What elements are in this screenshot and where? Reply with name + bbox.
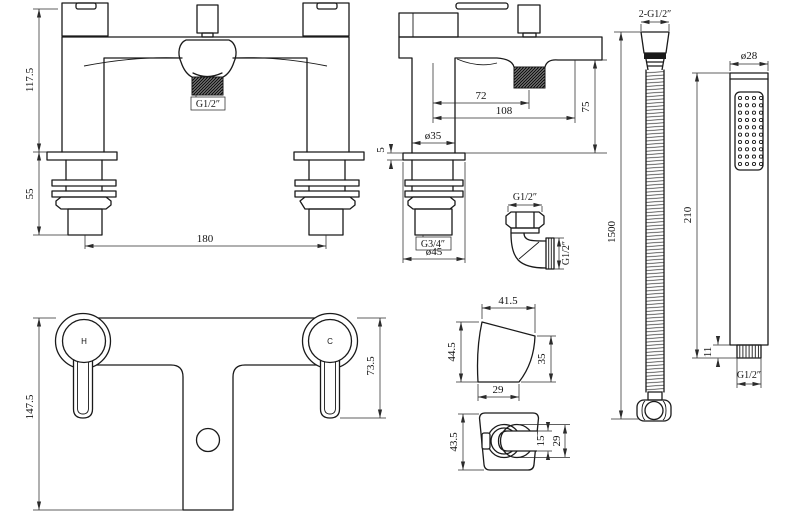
right-washer-1 xyxy=(295,180,359,186)
hot-indicator: H xyxy=(81,337,87,346)
lever-handle-side xyxy=(456,3,508,9)
flange-side xyxy=(403,153,465,160)
technical-drawing-sheet: G1/2″ 117.5 55 180 xyxy=(0,0,800,513)
cold-indicator: C xyxy=(327,337,333,346)
hose-nut-face xyxy=(645,402,663,420)
left-inlet-shank xyxy=(68,209,102,235)
handset-dimensions: ø28 210 11 G1/2″ xyxy=(682,50,768,388)
hose-top-band xyxy=(644,53,666,59)
front-view: G1/2″ 117.5 55 180 xyxy=(24,3,364,249)
backnut-side xyxy=(408,197,455,209)
dim-plan-depth: 147.5 xyxy=(24,394,36,419)
connector-threads xyxy=(740,346,759,358)
right-washer-2 xyxy=(295,191,359,197)
cold-handle xyxy=(303,3,349,36)
right-flange xyxy=(294,152,364,160)
outlet-dome xyxy=(179,40,236,77)
dim-total-height: 117.5 xyxy=(24,67,36,92)
hot-handle xyxy=(62,3,108,36)
diverter-knob-side xyxy=(518,5,540,33)
elbow-hex-nut xyxy=(506,212,544,228)
right-inlet-shank xyxy=(309,209,343,235)
dim-handset-length: 210 xyxy=(682,206,694,223)
left-washer-1 xyxy=(52,180,116,186)
valve-body-side xyxy=(399,13,458,37)
bracket-tab xyxy=(482,433,490,449)
left-washer-2 xyxy=(52,191,116,197)
hot-handle-notch xyxy=(76,3,96,9)
dim-hole-centres: 180 xyxy=(197,233,214,245)
bracket-front-view: 43.5 15 29 xyxy=(448,413,570,470)
dim-connector-thread: G1/2″ xyxy=(737,370,761,381)
dim-deck-height: 75 xyxy=(580,101,592,113)
elbow-collar xyxy=(511,228,539,233)
bracket-side-outline xyxy=(478,322,536,382)
handset: ø28 210 11 G1/2″ xyxy=(682,50,768,388)
elbow-thread-end xyxy=(546,238,554,269)
elbow-thread-lines xyxy=(549,238,552,269)
side-view-dimensions: 72 108 75 ø35 5 ø45 xyxy=(375,60,607,263)
dim-spout-thread: G1/2″ xyxy=(196,99,220,110)
hose-top-cone xyxy=(641,32,669,53)
right-backnut xyxy=(300,197,355,209)
dim-elbow-thread-side: G1/2″ xyxy=(561,241,572,265)
dim-base-dia: ø45 xyxy=(426,246,443,258)
elbow-dimensions: G1/2″ G1/2″ xyxy=(508,192,572,269)
spray-holes xyxy=(738,96,762,165)
dim-clip-bore: 15 xyxy=(535,435,547,447)
dim-bracket-top-width: 41.5 xyxy=(498,295,518,307)
dim-bracket-front-height2: 43.5 xyxy=(448,432,460,452)
spout-thread-hatch xyxy=(192,77,223,95)
hose-neck xyxy=(646,59,664,70)
left-flange xyxy=(47,152,117,160)
bracket-side-dimensions: 41.5 44.5 35 29 xyxy=(446,295,556,401)
dim-connector-height: 11 xyxy=(702,347,714,358)
dim-bracket-base-width: 29 xyxy=(493,384,505,396)
spout-thread-hatch-side xyxy=(514,67,545,88)
diverter-hole-plan xyxy=(197,429,220,452)
dim-body-dia: ø35 xyxy=(425,130,442,142)
front-view-dimensions: 117.5 55 180 xyxy=(24,9,326,249)
plan-view: H C 147.5 73.5 xyxy=(24,314,386,511)
dim-deck-plate: 5 xyxy=(375,147,387,153)
elbow-fitting: G1/2″ G1/2″ xyxy=(506,192,572,269)
deck-underside-curve xyxy=(457,59,497,65)
cold-handle-notch xyxy=(317,3,337,9)
dim-handle-projection: 73.5 xyxy=(365,356,377,376)
dim-head-dia: ø28 xyxy=(741,50,758,62)
shower-hose: 2-G1/2″ 1500 xyxy=(606,9,671,421)
dim-elbow-thread-top: G1/2″ xyxy=(513,192,537,203)
dim-bracket-front-height: 35 xyxy=(536,353,548,365)
washer-2-side xyxy=(405,191,463,197)
diverter-knob xyxy=(197,5,218,33)
clip-bore-fill xyxy=(504,431,537,451)
inlet-shank-side xyxy=(415,209,452,235)
dim-overall-reach: 108 xyxy=(496,105,513,117)
plan-bar-bottom-edge xyxy=(84,365,330,510)
plan-bar-fill xyxy=(83,318,330,365)
spout-underside-curves xyxy=(84,58,327,66)
hose-bottom-collar xyxy=(648,392,662,400)
dim-hose-connections: 2-G1/2″ xyxy=(639,9,672,20)
diverter-stem xyxy=(202,33,213,37)
bath-shower-mixer-drawing: G1/2″ 117.5 55 180 xyxy=(0,0,800,513)
hose-corrugation xyxy=(646,70,664,392)
dim-hose-length: 1500 xyxy=(606,221,618,244)
dim-shank-length: 55 xyxy=(24,188,36,200)
side-view: G3/4″ 72 108 75 ø35 5 ø45 xyxy=(375,3,607,263)
dim-spout-centre: 72 xyxy=(476,90,487,102)
dim-ring-dia: 29 xyxy=(551,435,563,447)
bracket-side-view: 41.5 44.5 35 29 xyxy=(446,295,556,401)
dim-bracket-height: 44.5 xyxy=(446,342,458,362)
elbow-highlight xyxy=(519,242,539,259)
washer-1-side xyxy=(405,180,463,186)
left-backnut xyxy=(56,197,111,209)
